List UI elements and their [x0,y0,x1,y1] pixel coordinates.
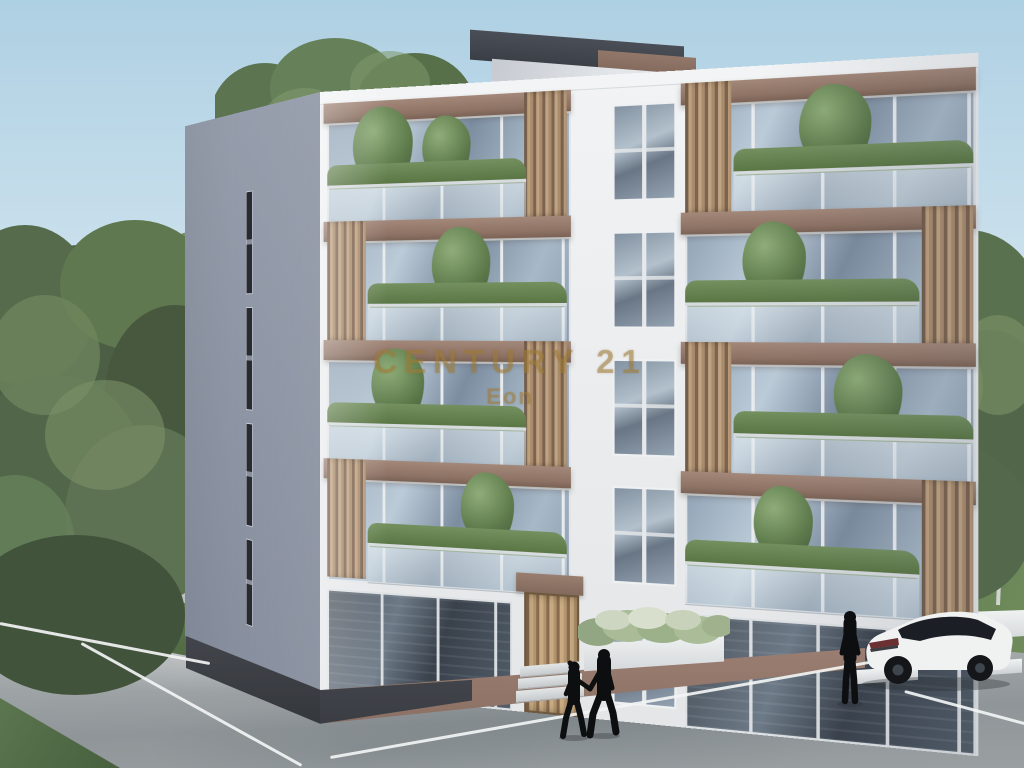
glass-railing [685,301,919,347]
balcony-plant [834,354,903,438]
wood-slat-screen [327,458,366,579]
planter-shrubs [578,596,730,648]
balcony-hedge [368,523,567,559]
balcony-fascia [681,205,976,234]
balcony-fascia [324,90,571,124]
window [685,229,976,349]
glass-railing [734,433,974,486]
window [327,237,571,346]
window [685,90,976,217]
window [327,111,571,226]
balcony-plant [799,82,871,172]
balcony-plant [422,114,470,182]
side-slit-window [246,423,252,527]
balcony-hedge [734,140,974,176]
glass-railing [368,303,567,346]
couple-silhouette [546,642,630,742]
balcony-hedge [734,411,974,444]
balcony-fascia [681,471,976,505]
window [327,478,571,597]
balcony-plant [461,471,514,547]
stairwell-window [612,486,676,587]
balcony-fascia [324,216,571,242]
wood-slat-screen [685,81,731,213]
wood-slat-screen [327,221,366,340]
glass-railing [327,179,526,226]
balcony-fascia [324,458,571,488]
balcony-hedge [685,539,919,579]
car-shadow [862,677,1010,691]
stairwell-window [612,230,676,328]
glass-railing [368,543,567,597]
car-wheel-rim [975,663,985,673]
balcony-hedge [685,278,919,307]
balcony-plant [742,221,806,302]
architectural-rendering: CENTURY 21 Eon [0,0,1024,768]
watermark-subtitle-text: Eon [280,384,740,410]
balcony-plant [754,485,813,564]
balcony-plant [432,226,490,306]
balcony-fascia [681,67,976,106]
person-silhouette [828,606,872,708]
side-slit-window [246,538,252,627]
suv-car [852,596,1020,696]
balcony-hedge [327,158,526,190]
side-slit-window [246,307,252,411]
balcony-plant [353,105,413,189]
stairwell-window [612,101,676,201]
parapet [320,53,978,105]
car-wheel-rim [893,665,904,676]
watermark: CENTURY 21 Eon [280,344,740,410]
wood-slat-screen [922,205,974,343]
watermark-brand-text: CENTURY 21 [280,344,740,380]
entrance-canopy [516,572,583,595]
side-slit-window [246,191,252,295]
balcony-hedge [368,282,567,308]
wood-slat-screen [524,90,567,217]
glass-railing [327,422,526,469]
glass-railing [734,163,974,216]
